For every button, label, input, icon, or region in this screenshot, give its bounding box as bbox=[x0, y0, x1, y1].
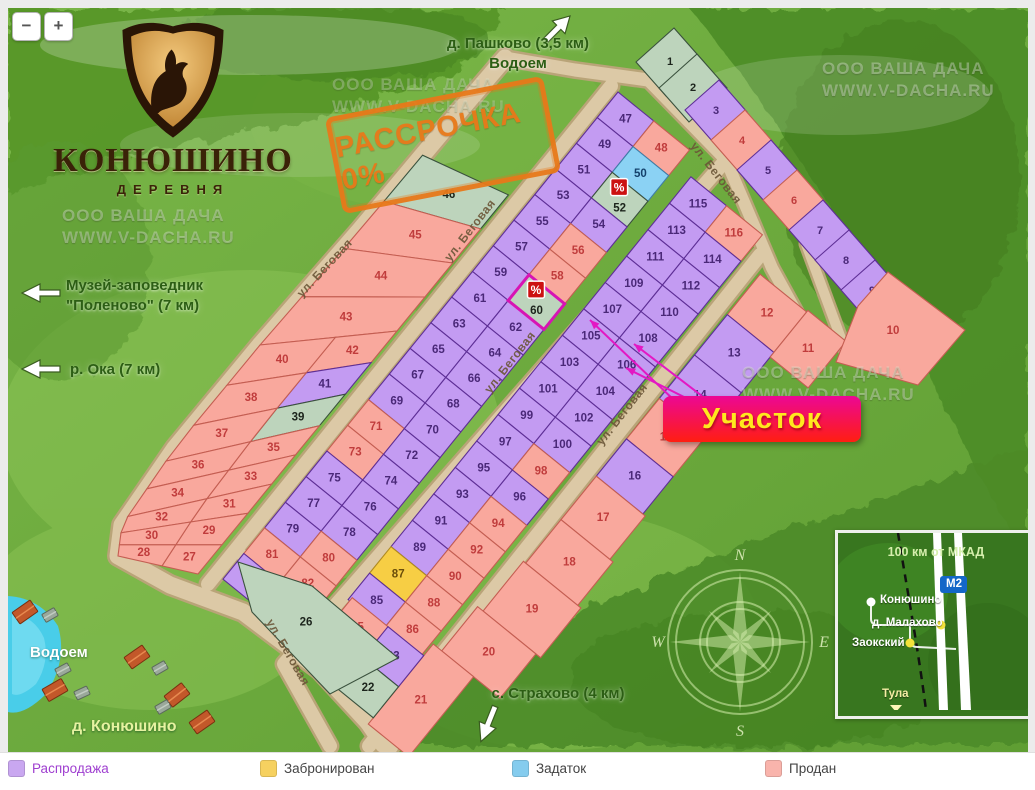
plot-number-90: 90 bbox=[449, 571, 462, 583]
plot-number-95: 95 bbox=[477, 463, 490, 475]
plot-number-100: 100 bbox=[553, 439, 572, 451]
plot-number-27: 27 bbox=[183, 551, 196, 563]
plot-number-38: 38 bbox=[245, 392, 258, 404]
plot-number-26: 26 bbox=[300, 616, 313, 628]
inset-road-badge-text: М2 bbox=[944, 578, 964, 590]
plot-number-34: 34 bbox=[171, 488, 184, 500]
zoom-out-button[interactable]: − bbox=[12, 12, 41, 41]
plot-number-62: 62 bbox=[509, 322, 522, 334]
plot-number-37: 37 bbox=[215, 428, 228, 440]
polenovo-label: Музей-заповедник "Поленово" (7 км) bbox=[66, 276, 203, 316]
discount-badge-text: % bbox=[531, 283, 542, 297]
logo-subtitle: ДЕРЕВНЯ bbox=[48, 182, 298, 197]
zoom-in-button[interactable]: + bbox=[44, 12, 73, 41]
plot-number-114: 114 bbox=[703, 254, 722, 266]
inset-title: 100 км от МКАД bbox=[838, 545, 1028, 559]
plot-number-33: 33 bbox=[244, 471, 257, 483]
west-arrow-icon bbox=[20, 280, 62, 306]
plot-number-87: 87 bbox=[392, 568, 405, 580]
plot-number-7: 7 bbox=[817, 225, 823, 237]
legend-label: Распродажа bbox=[32, 761, 109, 776]
pashkovo-label: д. Пашково (3,5 км) Водоем bbox=[388, 34, 648, 74]
south-arrow-icon bbox=[466, 700, 510, 748]
plot-number-31: 31 bbox=[223, 499, 236, 511]
page: 4749515355575961636567697173757779818348… bbox=[0, 0, 1035, 790]
plot-number-105: 105 bbox=[581, 331, 601, 343]
compass-letter: N bbox=[734, 547, 747, 564]
plot-number-104: 104 bbox=[596, 386, 616, 398]
plot-number-16: 16 bbox=[628, 470, 641, 482]
legend-item-4: Продан bbox=[765, 760, 836, 780]
legend-label: Продан bbox=[789, 761, 836, 776]
plot-number-79: 79 bbox=[286, 524, 299, 536]
legend-swatch bbox=[260, 760, 277, 777]
plot-number-19: 19 bbox=[526, 604, 539, 616]
plot-number-30: 30 bbox=[145, 530, 158, 542]
legend: РаспродажаЗабронированЗадатокПродан bbox=[0, 752, 1035, 790]
plot-number-39: 39 bbox=[292, 412, 305, 424]
plot-number-88: 88 bbox=[428, 597, 441, 609]
plot-number-98: 98 bbox=[535, 465, 548, 477]
inset-town-zaokskiy: Заокский bbox=[852, 637, 905, 649]
plot-number-56: 56 bbox=[572, 245, 585, 257]
plot-number-36: 36 bbox=[192, 459, 205, 471]
plot-number-91: 91 bbox=[435, 516, 448, 528]
legend-label: Задаток bbox=[536, 761, 586, 776]
plot-number-80: 80 bbox=[322, 553, 335, 565]
legend-label: Забронирован bbox=[284, 761, 374, 776]
plot-number-20: 20 bbox=[482, 646, 495, 658]
plot-number-29: 29 bbox=[203, 525, 216, 537]
plot-number-76: 76 bbox=[364, 501, 377, 513]
plot-number-48: 48 bbox=[655, 142, 668, 154]
plot-number-45: 45 bbox=[409, 229, 422, 241]
plot-number-102: 102 bbox=[574, 412, 593, 424]
plot-number-64: 64 bbox=[489, 347, 502, 359]
plot-number-18: 18 bbox=[563, 557, 576, 569]
plot-number-12: 12 bbox=[761, 307, 774, 319]
oka-label: р. Ока (7 км) bbox=[70, 360, 160, 380]
plot-number-111: 111 bbox=[646, 251, 665, 263]
plot-number-61: 61 bbox=[474, 293, 487, 305]
plot-number-22: 22 bbox=[362, 682, 375, 694]
legend-item-2: Забронирован bbox=[260, 760, 374, 780]
plot-number-8: 8 bbox=[843, 255, 849, 267]
plot-number-60: 60 bbox=[530, 305, 543, 317]
plot-number-41: 41 bbox=[319, 378, 332, 390]
plot-number-43: 43 bbox=[340, 311, 353, 323]
plot-number-2: 2 bbox=[690, 82, 696, 94]
plot-number-55: 55 bbox=[536, 216, 549, 228]
plot-number-116: 116 bbox=[725, 228, 744, 240]
plot-number-10: 10 bbox=[887, 325, 900, 337]
plot-number-109: 109 bbox=[624, 278, 643, 290]
plot-number-68: 68 bbox=[447, 399, 460, 411]
village-label: д. Конюшино bbox=[72, 718, 177, 736]
plot-number-51: 51 bbox=[578, 165, 591, 177]
plot-number-115: 115 bbox=[689, 199, 708, 211]
legend-swatch bbox=[765, 760, 782, 777]
inset-town-dot bbox=[906, 639, 915, 648]
plot-number-1: 1 bbox=[667, 56, 673, 68]
inset-town-malahovo: д. Малахово bbox=[872, 617, 943, 629]
plot-number-96: 96 bbox=[513, 492, 526, 504]
inset-town-tula: Тула bbox=[882, 688, 909, 700]
plot-number-93: 93 bbox=[456, 489, 469, 501]
plot-number-113: 113 bbox=[667, 225, 686, 237]
plot-number-63: 63 bbox=[453, 318, 466, 330]
plot-number-72: 72 bbox=[405, 450, 418, 462]
plot-number-40: 40 bbox=[276, 354, 289, 366]
plot-number-71: 71 bbox=[370, 421, 383, 433]
plot-number-54: 54 bbox=[592, 219, 605, 231]
plot-number-89: 89 bbox=[413, 542, 426, 554]
plot-number-21: 21 bbox=[415, 694, 428, 706]
plot-number-28: 28 bbox=[137, 547, 150, 559]
plot-number-92: 92 bbox=[470, 545, 483, 557]
watermark: ООО ВАША ДАЧАWWW.V-DACHA.RU bbox=[62, 205, 235, 249]
compass-letter: W bbox=[651, 634, 666, 651]
plot-number-107: 107 bbox=[603, 304, 622, 316]
compass-letter: S bbox=[736, 723, 744, 740]
pond-label: Водоем bbox=[30, 644, 88, 661]
plot-number-4: 4 bbox=[739, 135, 746, 147]
plot-number-32: 32 bbox=[155, 512, 168, 524]
watermark: ООО ВАША ДАЧАWWW.V-DACHA.RU bbox=[822, 58, 995, 102]
plot-number-67: 67 bbox=[411, 370, 424, 382]
plot-number-57: 57 bbox=[515, 242, 528, 254]
logo: КОНЮШИНО ДЕРЕВНЯ bbox=[48, 22, 298, 197]
plot-number-5: 5 bbox=[765, 165, 771, 177]
plot-number-17: 17 bbox=[597, 512, 610, 524]
logo-title: КОНЮШИНО bbox=[48, 142, 298, 180]
plot-number-58: 58 bbox=[551, 271, 564, 283]
inset-town-konyushino: Конюшино bbox=[880, 594, 941, 606]
plot-map: 4749515355575961636567697173757779818348… bbox=[8, 8, 1028, 753]
plot-number-94: 94 bbox=[492, 518, 505, 530]
plot-number-110: 110 bbox=[660, 307, 679, 319]
plot-number-3: 3 bbox=[713, 105, 719, 117]
plot-callout: Участок bbox=[663, 396, 861, 442]
west-arrow-icon bbox=[20, 356, 62, 382]
plot-number-73: 73 bbox=[349, 447, 362, 459]
plot-number-99: 99 bbox=[520, 410, 533, 422]
plot-number-69: 69 bbox=[390, 395, 403, 407]
plot-number-85: 85 bbox=[370, 595, 383, 607]
legend-item-1: Распродажа bbox=[8, 760, 109, 780]
plot-number-42: 42 bbox=[346, 345, 359, 357]
plot-number-77: 77 bbox=[307, 498, 320, 510]
plot-number-52: 52 bbox=[613, 203, 626, 215]
horse-shield-icon bbox=[108, 22, 238, 142]
legend-swatch bbox=[512, 760, 529, 777]
plot-number-6: 6 bbox=[791, 195, 797, 207]
plot-number-103: 103 bbox=[560, 357, 579, 369]
plot-number-49: 49 bbox=[598, 139, 611, 151]
plot-number-59: 59 bbox=[494, 267, 507, 279]
plot-number-53: 53 bbox=[557, 190, 570, 202]
discount-badge-text: % bbox=[614, 181, 625, 195]
plot-number-86: 86 bbox=[406, 624, 419, 636]
plot-number-108: 108 bbox=[639, 333, 659, 345]
plot-number-44: 44 bbox=[375, 270, 388, 282]
plot-number-65: 65 bbox=[432, 344, 445, 356]
plot-number-13: 13 bbox=[728, 348, 741, 360]
plot-number-75: 75 bbox=[328, 472, 341, 484]
legend-swatch bbox=[8, 760, 25, 777]
plot-number-70: 70 bbox=[426, 424, 439, 436]
plot-number-101: 101 bbox=[539, 384, 559, 396]
plot-number-47: 47 bbox=[619, 113, 632, 125]
plot-number-74: 74 bbox=[385, 476, 398, 488]
plot-number-97: 97 bbox=[499, 436, 512, 448]
inset-map: 100 км от МКАД М2 Конюшино д. Малахово З… bbox=[835, 530, 1028, 719]
plot-number-11: 11 bbox=[802, 343, 815, 355]
plot-number-112: 112 bbox=[682, 280, 701, 292]
plot-number-78: 78 bbox=[343, 527, 356, 539]
plot-number-81: 81 bbox=[266, 549, 279, 561]
legend-item-3: Задаток bbox=[512, 760, 586, 780]
inset-town-dot bbox=[867, 598, 876, 607]
plot-callout-text: Участок bbox=[702, 403, 822, 436]
plot-number-50: 50 bbox=[634, 168, 647, 180]
plot-number-66: 66 bbox=[468, 373, 481, 385]
plot-number-35: 35 bbox=[267, 442, 280, 454]
compass-letter: E bbox=[818, 634, 829, 651]
